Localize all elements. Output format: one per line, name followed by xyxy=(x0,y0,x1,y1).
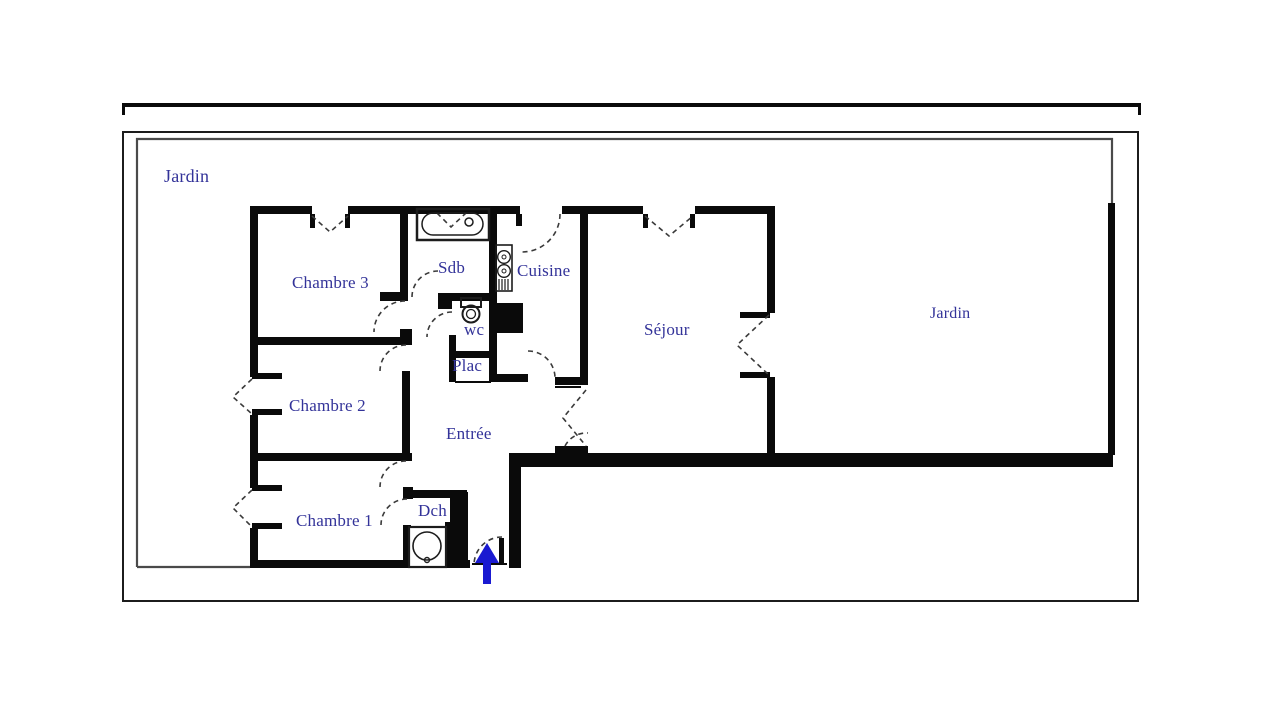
room-label-cuisine: Cuisine xyxy=(517,262,570,279)
room-label-jardin-outer: Jardin xyxy=(164,167,209,185)
toilet-icon xyxy=(461,298,481,323)
floor-plan-page: Jardin Chambre 3 Sdb Cuisine Séjour Jard… xyxy=(0,0,1280,720)
kitchen-sink-icon xyxy=(496,245,512,291)
floor-plan-drawing xyxy=(0,0,1280,720)
room-label-chambre2: Chambre 2 xyxy=(289,397,366,414)
room-label-chambre1: Chambre 1 xyxy=(296,512,373,529)
top-rule xyxy=(122,103,1141,115)
room-label-jardin-right: Jardin xyxy=(930,306,970,322)
outer-border xyxy=(123,132,1138,601)
room-label-dch: Dch xyxy=(418,502,447,519)
room-label-plac: Plac xyxy=(452,357,482,374)
apartment-walls xyxy=(250,206,1113,568)
room-label-sejour: Séjour xyxy=(644,321,690,338)
room-label-chambre3: Chambre 3 xyxy=(292,274,369,291)
room-label-entree: Entrée xyxy=(446,425,492,442)
garden-fence xyxy=(137,139,1115,567)
room-label-sdb: Sdb xyxy=(438,259,465,276)
room-label-wc: wc xyxy=(464,321,484,338)
shower-icon xyxy=(409,527,446,567)
